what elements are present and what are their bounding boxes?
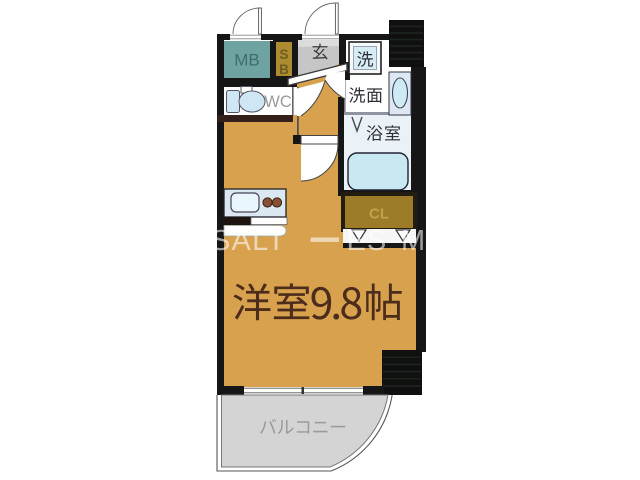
svg-text:CL: CL [369, 206, 389, 223]
svg-text:B: B [279, 62, 289, 77]
svg-text:WC: WC [264, 93, 292, 111]
svg-text:MB: MB [234, 51, 260, 70]
svg-text:M: M [401, 225, 425, 257]
svg-text:ES: ES [347, 225, 388, 257]
svg-text:SALT: SALT [211, 225, 286, 257]
svg-text:S: S [279, 47, 288, 62]
